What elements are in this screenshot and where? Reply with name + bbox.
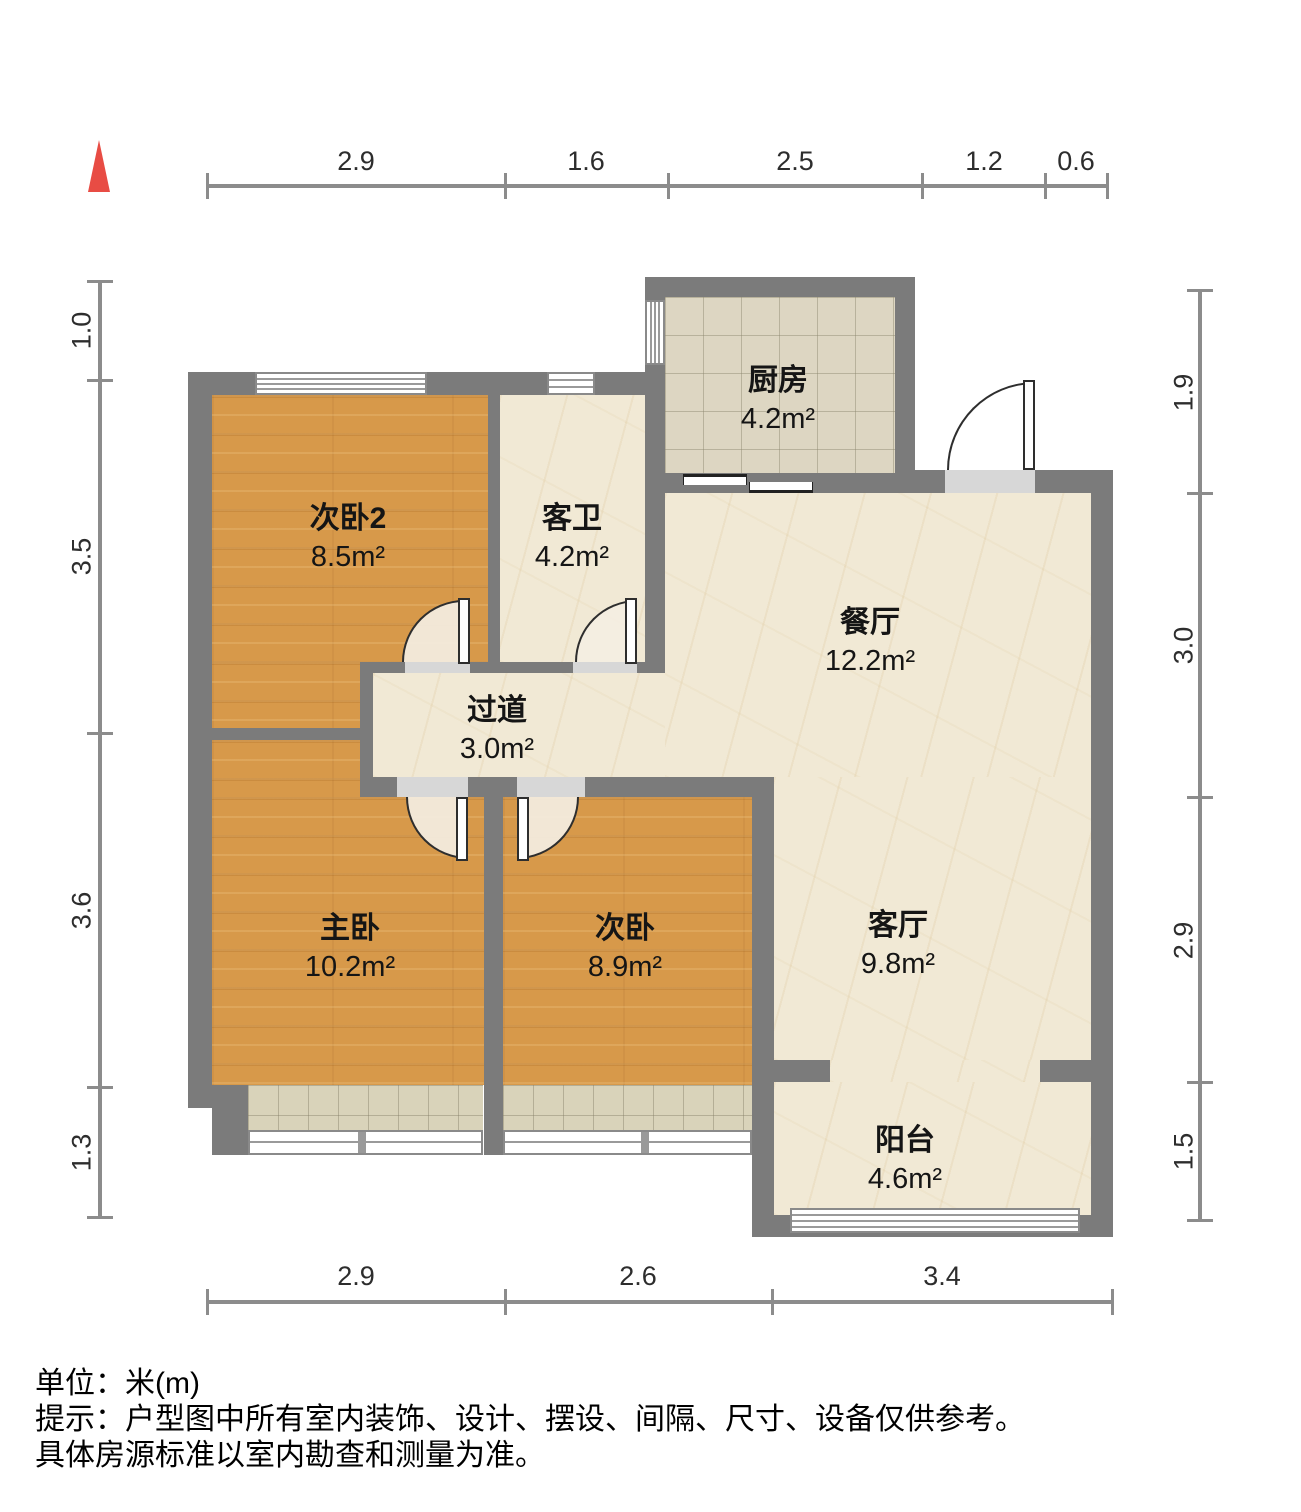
footer-note-line1: 提示：户型图中所有室内装饰、设计、摆设、间隔、尺寸、设备仅供参考。 [35,1402,1025,1438]
room-label-bedroom2: 次卧2 8.5m² [248,500,448,576]
dim-tick [87,1086,113,1089]
wall-living-balcony-stub-right [1040,1060,1091,1082]
room-name: 次卧2 [248,500,448,538]
dim-tick [921,173,924,199]
room-label-master: 主卧 10.2m² [250,910,450,986]
room-name: 阳台 [805,1122,1005,1160]
room-area: 4.6m² [805,1160,1005,1198]
window-bay-bedroom [503,1130,752,1155]
room-label-living: 客厅 9.8m² [798,907,998,983]
dim-tick [206,173,209,199]
room-label-hallway: 过道 3.0m² [397,692,597,768]
wall-kitchen-right [895,277,915,493]
dim-label-left: 1.3 [67,1113,98,1193]
dim-line-top [207,184,1108,188]
dim-tick [504,1289,507,1315]
room-label-bathroom: 客卫 4.2m² [472,500,672,576]
door-leaf-bedroom2 [458,598,470,664]
dim-label-bottom: 3.4 [902,1261,982,1292]
dim-tick [1111,1289,1114,1315]
room-label-bedroom: 次卧 8.9m² [525,910,725,986]
door-leaf-master [456,797,468,861]
dim-tick [504,173,507,199]
dim-tick [87,1216,113,1219]
window-balcony [790,1208,1080,1233]
dim-label-top: 2.9 [316,146,396,177]
room-area: 3.0m² [397,730,597,768]
dim-tick [771,1289,774,1315]
floor-plan: 次卧2 8.5m² 客卫 4.2m² 厨房 4.2m² 餐厅 12.2m² 过道… [0,0,1301,1512]
room-area: 8.5m² [248,538,448,576]
wall-right-exterior [1091,470,1113,1237]
dim-line-left [98,281,102,1218]
room-name: 厨房 [678,362,878,400]
window-kitchen [645,300,665,365]
room-floor-bedroom2-ext [212,662,360,728]
room-name: 过道 [397,692,597,730]
dim-label-top: 1.2 [944,146,1024,177]
dim-label-bottom: 2.6 [598,1261,678,1292]
dim-tick [1187,796,1213,799]
wall-left-exterior [188,372,212,1108]
dim-tick [87,280,113,283]
threshold-bedroom [517,777,585,797]
room-area: 4.2m² [472,538,672,576]
bay-sill-bedroom [503,1085,752,1130]
dim-line-bottom [207,1300,1113,1304]
dim-label-right: 1.5 [1169,1112,1200,1192]
door-leaf-bathroom [625,598,637,664]
window-bathroom [547,372,595,395]
room-floor-master-ext [212,740,363,797]
door-arc-entry [947,382,1035,470]
dim-label-left: 1.0 [67,291,98,371]
dim-tick [1187,1219,1213,1222]
dim-tick [206,1289,209,1315]
dim-label-left: 3.6 [67,871,98,951]
window-bay-master [248,1130,483,1155]
room-label-dining: 餐厅 12.2m² [770,604,970,680]
dim-label-right: 2.9 [1169,901,1200,981]
dim-label-right: 1.9 [1169,353,1200,433]
dim-tick [1187,1081,1213,1084]
footer-note-line2: 具体房源标准以室内勘查和测量为准。 [35,1438,545,1474]
window-bedroom2 [255,372,427,395]
room-name: 餐厅 [770,604,970,642]
threshold-master [397,777,468,797]
dim-label-top: 2.5 [755,146,835,177]
room-area: 12.2m² [770,642,970,680]
room-name: 客卫 [472,500,672,538]
door-leaf-entry [1023,380,1035,470]
dim-label-right: 3.0 [1169,606,1200,686]
dim-tick [1187,289,1213,292]
door-leaf-bedroom [517,797,529,861]
dim-label-top: 0.6 [1036,146,1116,177]
wall-bedroom2-master [188,728,363,740]
wall-living-balcony-stub-left [752,1060,830,1082]
wall-bedroom-right-balcony-left [752,797,774,1237]
footer-unit-label: 单位：米(m) [35,1366,200,1402]
room-area: 10.2m² [250,948,450,986]
room-name: 次卧 [525,910,725,948]
kitchen-sliding-door-panel [749,482,813,493]
room-name: 主卧 [250,910,450,948]
room-area: 4.2m² [678,400,878,438]
wall-master-bedroom-divider [484,797,503,1155]
room-label-balcony: 阳台 4.6m² [805,1122,1005,1198]
living-balcony-opening [830,1060,1040,1082]
wall-bay-left-pier [212,1085,248,1155]
north-indicator-icon [88,140,110,192]
room-area: 8.9m² [525,948,725,986]
kitchen-sliding-door-panel [683,474,747,485]
dim-label-left: 3.5 [67,517,98,597]
dim-label-bottom: 2.9 [316,1261,396,1292]
bay-sill-master [248,1085,483,1130]
room-label-kitchen: 厨房 4.2m² [678,362,878,438]
room-name: 客厅 [798,907,998,945]
dim-tick [87,732,113,735]
dim-tick [667,173,670,199]
dim-tick [87,379,113,382]
room-area: 9.8m² [798,945,998,983]
dim-label-top: 1.6 [546,146,626,177]
threshold-entry [945,470,1035,493]
wall-kitchen-top [645,277,915,297]
dim-tick [1187,492,1213,495]
